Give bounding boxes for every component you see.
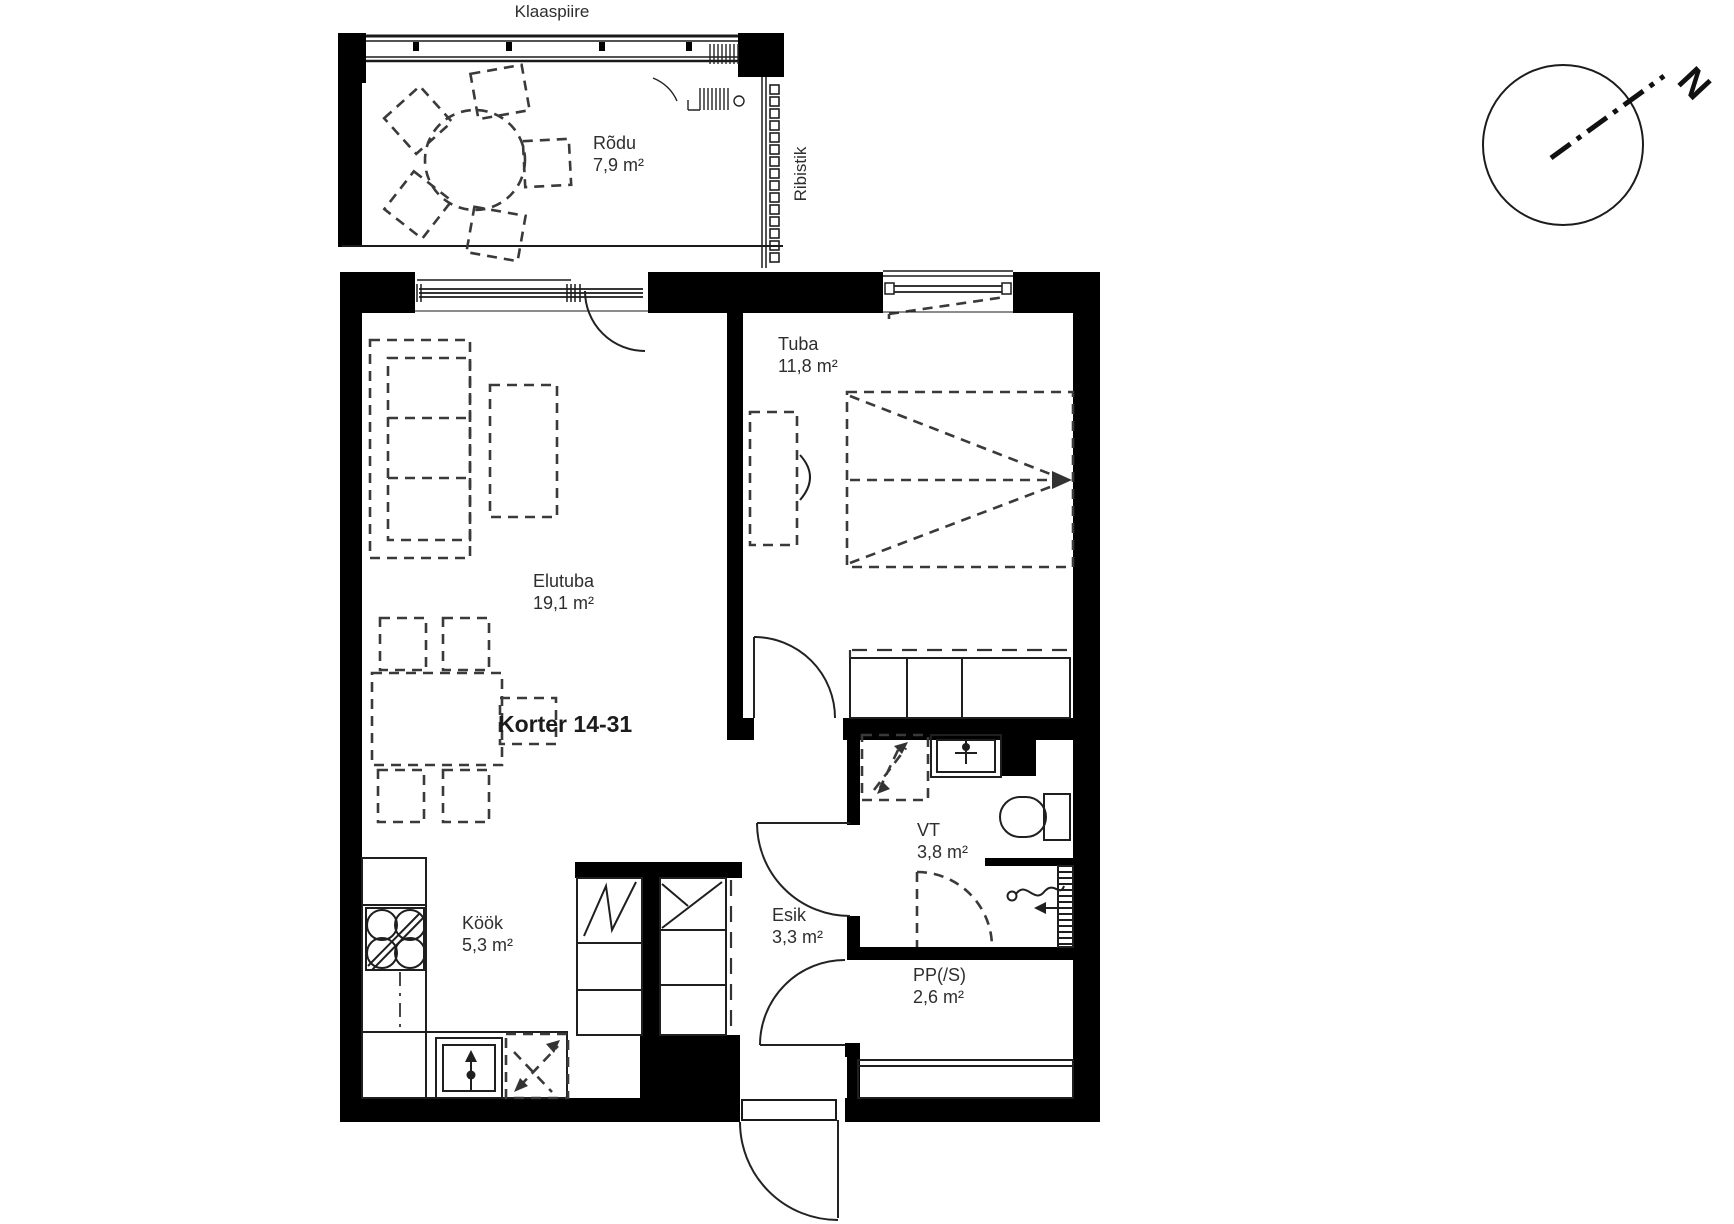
room-kook-name: Köök [462, 913, 504, 933]
room-kook-area: 5,3 m² [462, 935, 513, 955]
room-esik-area: 3,3 m² [772, 927, 823, 947]
room-vt-name: VT [917, 820, 940, 840]
room-esik-name: Esik [772, 905, 807, 925]
room-pps-area: 2,6 m² [913, 987, 964, 1007]
room-elutuba-area: 19,1 m² [533, 593, 594, 613]
bedroom-window [883, 266, 1013, 319]
bathroom-sink [931, 735, 1001, 777]
room-tuba-name: Tuba [778, 334, 819, 354]
glass-railing-label: Klaaspiire [515, 2, 590, 21]
apartment-title: Korter 14-31 [498, 711, 632, 737]
living-room-window [415, 272, 648, 313]
room-rodu-area: 7,9 m² [593, 155, 644, 175]
glass-railing [342, 36, 762, 61]
walls [340, 272, 1100, 1122]
bedroom-door [754, 637, 835, 718]
dishwasher-space [506, 1034, 568, 1098]
room-tuba-area: 11,8 m² [778, 356, 838, 376]
room-rodu-name: Rõdu [593, 133, 636, 153]
room-vt-area: 3,8 m² [917, 842, 968, 862]
bed [847, 392, 1073, 567]
washing-machine-space [862, 735, 928, 800]
bathroom-door [757, 823, 850, 916]
kitchen-sink [436, 1038, 502, 1098]
shower [917, 866, 1073, 947]
fridge-cabinet [577, 878, 642, 1035]
hall-closet [660, 878, 731, 1035]
balcony-table [425, 110, 525, 210]
floor-plan-canvas: N Klaaspiire Ribistik Rõdu 7,9 m² Tuba 1… [0, 0, 1734, 1224]
louvre-screen [762, 77, 779, 268]
wardrobe [850, 650, 1070, 718]
nightstand [750, 412, 810, 545]
storage-door [760, 960, 845, 1045]
vent-grille-icon [653, 44, 744, 110]
balcony [338, 33, 784, 268]
entry-door [740, 1100, 838, 1220]
kitchen-counter [362, 858, 567, 1098]
stove [366, 908, 425, 970]
north-arrow: N [1483, 59, 1718, 225]
coffee-table [490, 385, 557, 517]
room-pps-name: PP(/S) [913, 965, 966, 985]
toilet [1000, 794, 1070, 840]
balcony-chairs [384, 65, 571, 261]
room-labels: Klaaspiire Ribistik Rõdu 7,9 m² Tuba 11,… [462, 2, 968, 1007]
louvre-screen-label: Ribistik [791, 146, 810, 201]
sofa [370, 340, 470, 558]
room-elutuba-name: Elutuba [533, 571, 595, 591]
north-letter: N [1669, 59, 1718, 108]
storage-shelf [858, 1060, 1073, 1098]
